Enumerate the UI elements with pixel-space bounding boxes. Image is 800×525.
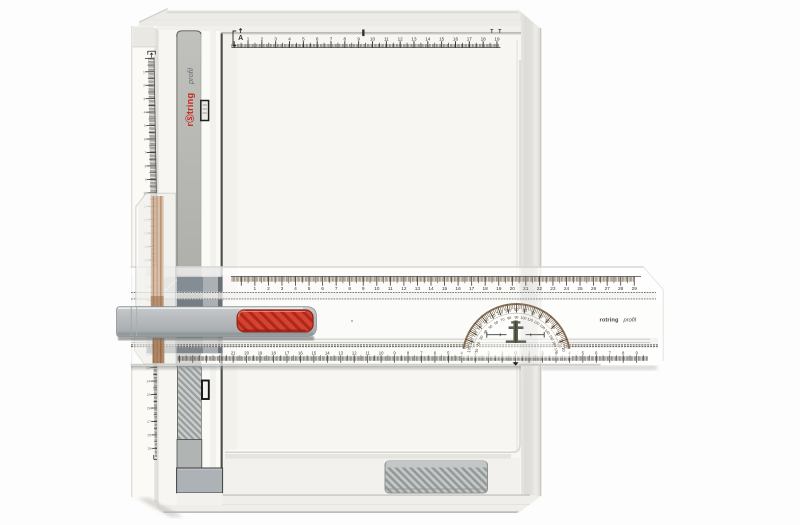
svg-text:8: 8 — [344, 36, 347, 41]
svg-text:4: 4 — [144, 111, 146, 115]
svg-text:7: 7 — [330, 36, 333, 41]
svg-text:A: A — [238, 35, 243, 42]
svg-text:25: 25 — [147, 393, 151, 397]
svg-text:3: 3 — [274, 36, 277, 41]
svg-text:14: 14 — [425, 36, 431, 41]
svg-text:19: 19 — [494, 36, 500, 41]
svg-text:20: 20 — [510, 286, 516, 292]
svg-text:profil: profil — [186, 68, 195, 85]
svg-text:10: 10 — [474, 348, 479, 353]
svg-text:16: 16 — [298, 351, 303, 356]
svg-text:15: 15 — [442, 286, 448, 292]
svg-text:28: 28 — [147, 433, 151, 437]
svg-text:16: 16 — [453, 36, 459, 41]
svg-text:27: 27 — [147, 420, 151, 424]
svg-text:6: 6 — [316, 36, 319, 41]
svg-text:13: 13 — [415, 286, 421, 292]
svg-text:3: 3 — [281, 286, 284, 292]
svg-text:19: 19 — [496, 286, 502, 292]
svg-text:15: 15 — [312, 351, 317, 356]
svg-text:14: 14 — [325, 351, 330, 356]
svg-text:20: 20 — [244, 351, 249, 356]
svg-text:21: 21 — [231, 351, 236, 356]
svg-text:18: 18 — [483, 286, 489, 292]
svg-text:5: 5 — [144, 124, 146, 128]
svg-text:5: 5 — [308, 286, 311, 292]
svg-text:5: 5 — [302, 36, 305, 41]
svg-text:80: 80 — [507, 316, 512, 321]
svg-text:2: 2 — [261, 36, 264, 41]
svg-text:1: 1 — [247, 36, 250, 41]
svg-text:17: 17 — [467, 36, 473, 41]
svg-text:16: 16 — [455, 286, 461, 292]
svg-text:26: 26 — [591, 286, 597, 292]
svg-text:rⓈtring: rⓈtring — [185, 93, 195, 127]
svg-text:24: 24 — [146, 379, 150, 383]
svg-text:10: 10 — [370, 36, 376, 41]
svg-text:17: 17 — [469, 286, 475, 292]
svg-text:90: 90 — [514, 316, 518, 320]
svg-text:9: 9 — [362, 286, 365, 292]
svg-text:19: 19 — [258, 351, 263, 356]
svg-text:9: 9 — [145, 178, 147, 182]
svg-text:14: 14 — [428, 286, 434, 292]
svg-text:17: 17 — [285, 351, 290, 356]
svg-text:27: 27 — [604, 286, 610, 292]
svg-text:1: 1 — [143, 70, 145, 74]
svg-text:12: 12 — [352, 351, 357, 356]
svg-text:10: 10 — [374, 286, 380, 292]
svg-text:23: 23 — [550, 286, 556, 292]
svg-text:11: 11 — [365, 351, 370, 356]
svg-text:8: 8 — [145, 164, 147, 168]
svg-text:7: 7 — [144, 151, 146, 155]
svg-text:25: 25 — [577, 286, 583, 292]
svg-text:15: 15 — [439, 36, 445, 41]
svg-text:7: 7 — [335, 286, 338, 292]
svg-text:18: 18 — [271, 351, 276, 356]
svg-text:29: 29 — [632, 286, 638, 292]
svg-text:6: 6 — [144, 137, 146, 141]
svg-text:11: 11 — [384, 36, 389, 41]
svg-text:18: 18 — [481, 36, 487, 41]
svg-text:12: 12 — [398, 36, 404, 41]
svg-text:13: 13 — [411, 36, 417, 41]
svg-text:6: 6 — [321, 286, 324, 292]
svg-text:29: 29 — [148, 447, 152, 451]
svg-text:2: 2 — [143, 84, 145, 88]
svg-text:12: 12 — [401, 286, 407, 292]
svg-text:9: 9 — [357, 36, 360, 41]
svg-text:26: 26 — [147, 406, 151, 410]
svg-text:10: 10 — [379, 351, 384, 356]
svg-text:8: 8 — [348, 286, 351, 292]
svg-text:28: 28 — [618, 286, 624, 292]
svg-text:24: 24 — [564, 286, 570, 292]
svg-text:1: 1 — [254, 286, 257, 292]
svg-text:13: 13 — [338, 351, 343, 356]
svg-text:4: 4 — [288, 36, 291, 41]
svg-text:22: 22 — [537, 286, 543, 292]
svg-text:11: 11 — [388, 286, 393, 292]
svg-text:2: 2 — [267, 286, 270, 292]
svg-text:rotring: rotring — [600, 317, 619, 323]
svg-text:4: 4 — [294, 286, 297, 292]
svg-text:3: 3 — [143, 97, 145, 101]
svg-text:profil: profil — [623, 317, 637, 323]
